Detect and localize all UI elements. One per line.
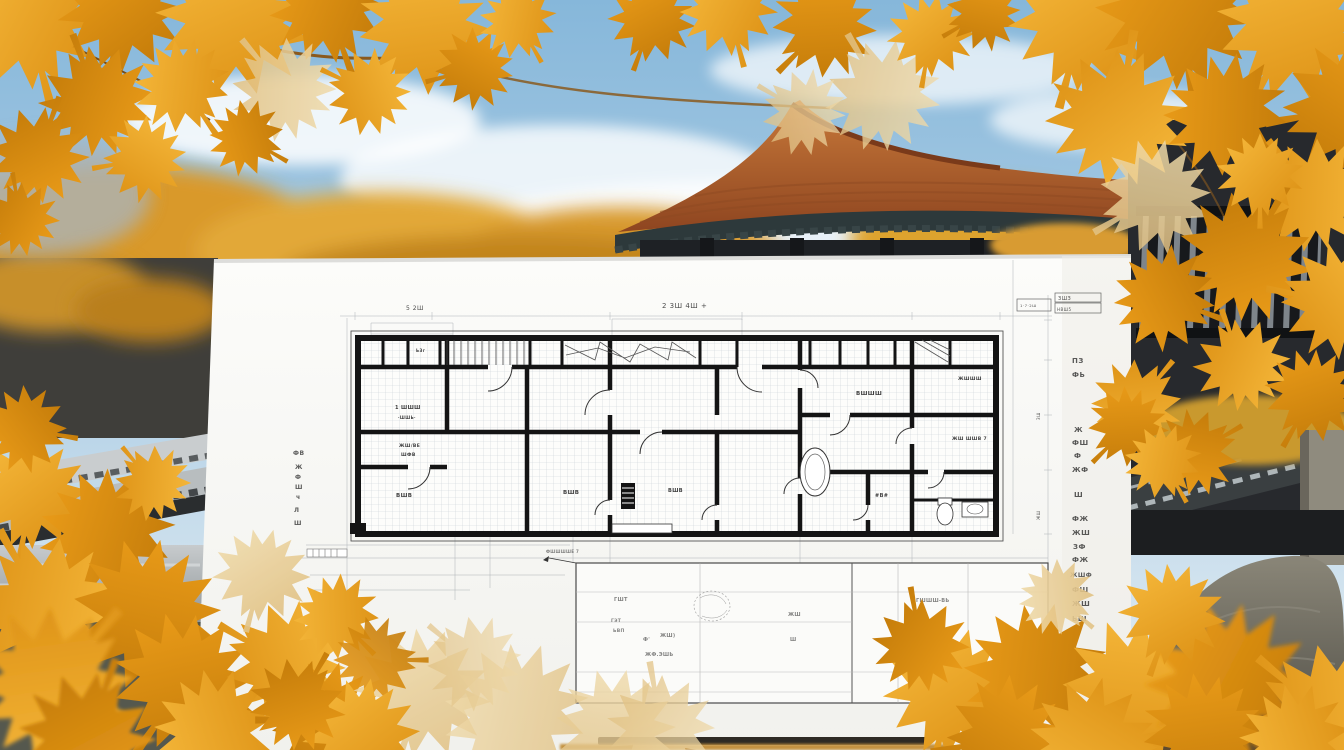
lower-label: ЖШ bbox=[788, 612, 801, 618]
room-label: ВШШШ bbox=[856, 391, 882, 397]
margin-label: Ф bbox=[295, 474, 301, 481]
room-label: #В# bbox=[875, 493, 888, 499]
margin-label: Ш bbox=[1074, 491, 1083, 499]
room-label: ВШВ bbox=[396, 493, 412, 499]
margin-label: ФЬ bbox=[1072, 371, 1085, 379]
room-label: ШФВ bbox=[401, 452, 416, 458]
lower-label: ГШТ bbox=[614, 597, 628, 603]
margin-label: ЗФ bbox=[1073, 543, 1086, 551]
lower-label: ЖФ.ЭШЬ bbox=[645, 652, 673, 658]
bathtub bbox=[800, 448, 830, 496]
margin-label: Л bbox=[294, 507, 299, 514]
dim-label: 5 2Ш bbox=[406, 305, 424, 312]
autumn-blueprint-scene: 1 ШШШ·ШШЬ·ЬЗгЖШ/ВЕШФВВШВВШВВШШШЖШШШЖШ ШШ… bbox=[0, 0, 1344, 750]
margin-label: ФЖ bbox=[1072, 515, 1089, 523]
room-label: 1 ШШШ bbox=[395, 405, 421, 411]
lower-label: ГЭТ bbox=[611, 618, 622, 624]
lower-label: Ш bbox=[790, 637, 796, 643]
dim-label: 2 3Ш 4Ш + bbox=[662, 302, 707, 310]
dim-label: ЖШ bbox=[1036, 510, 1041, 520]
room-label: ЖШ/ВЕ bbox=[399, 443, 420, 449]
margin-label: ФВ bbox=[293, 450, 305, 457]
counter bbox=[612, 524, 672, 533]
room-label: ЖШШШ bbox=[958, 376, 982, 382]
room-label: ·ШШЬ· bbox=[398, 415, 416, 420]
margin-label: ЖШ bbox=[1072, 529, 1090, 537]
dim-label: НВШ5 bbox=[1057, 307, 1072, 312]
margin-label: Ж bbox=[1074, 426, 1083, 434]
room-label: ЖШ ШШВ 7 bbox=[952, 436, 987, 442]
margin-label: Ф bbox=[1074, 452, 1081, 460]
lower-label: ФШШШШЕ 7 bbox=[546, 549, 579, 554]
margin-label: Ш bbox=[294, 520, 302, 527]
lower-label: ЬВП bbox=[613, 628, 625, 634]
dim-label: ЗШ bbox=[1036, 412, 1041, 420]
lower-label: Ф' bbox=[643, 637, 650, 643]
margin-label: ч bbox=[296, 494, 301, 501]
room-label: ВШВ bbox=[563, 490, 579, 496]
room-label: ВШВ bbox=[668, 488, 683, 494]
toilet-bowl bbox=[937, 503, 953, 525]
room-label: ЬЗг bbox=[416, 348, 425, 353]
radiator bbox=[621, 483, 635, 509]
margin-label: ЖФ bbox=[1072, 466, 1089, 474]
dim-label: 1·7·2Ш bbox=[1020, 303, 1037, 308]
dim-label: ЗШЗ bbox=[1058, 296, 1071, 302]
margin-label: Ш bbox=[295, 484, 303, 491]
margin-label: ПЗ bbox=[1072, 357, 1084, 365]
margin-label: Ж bbox=[295, 464, 303, 471]
lower-label: ЖШ) bbox=[660, 633, 675, 639]
margin-label: ФШ bbox=[1072, 439, 1089, 447]
